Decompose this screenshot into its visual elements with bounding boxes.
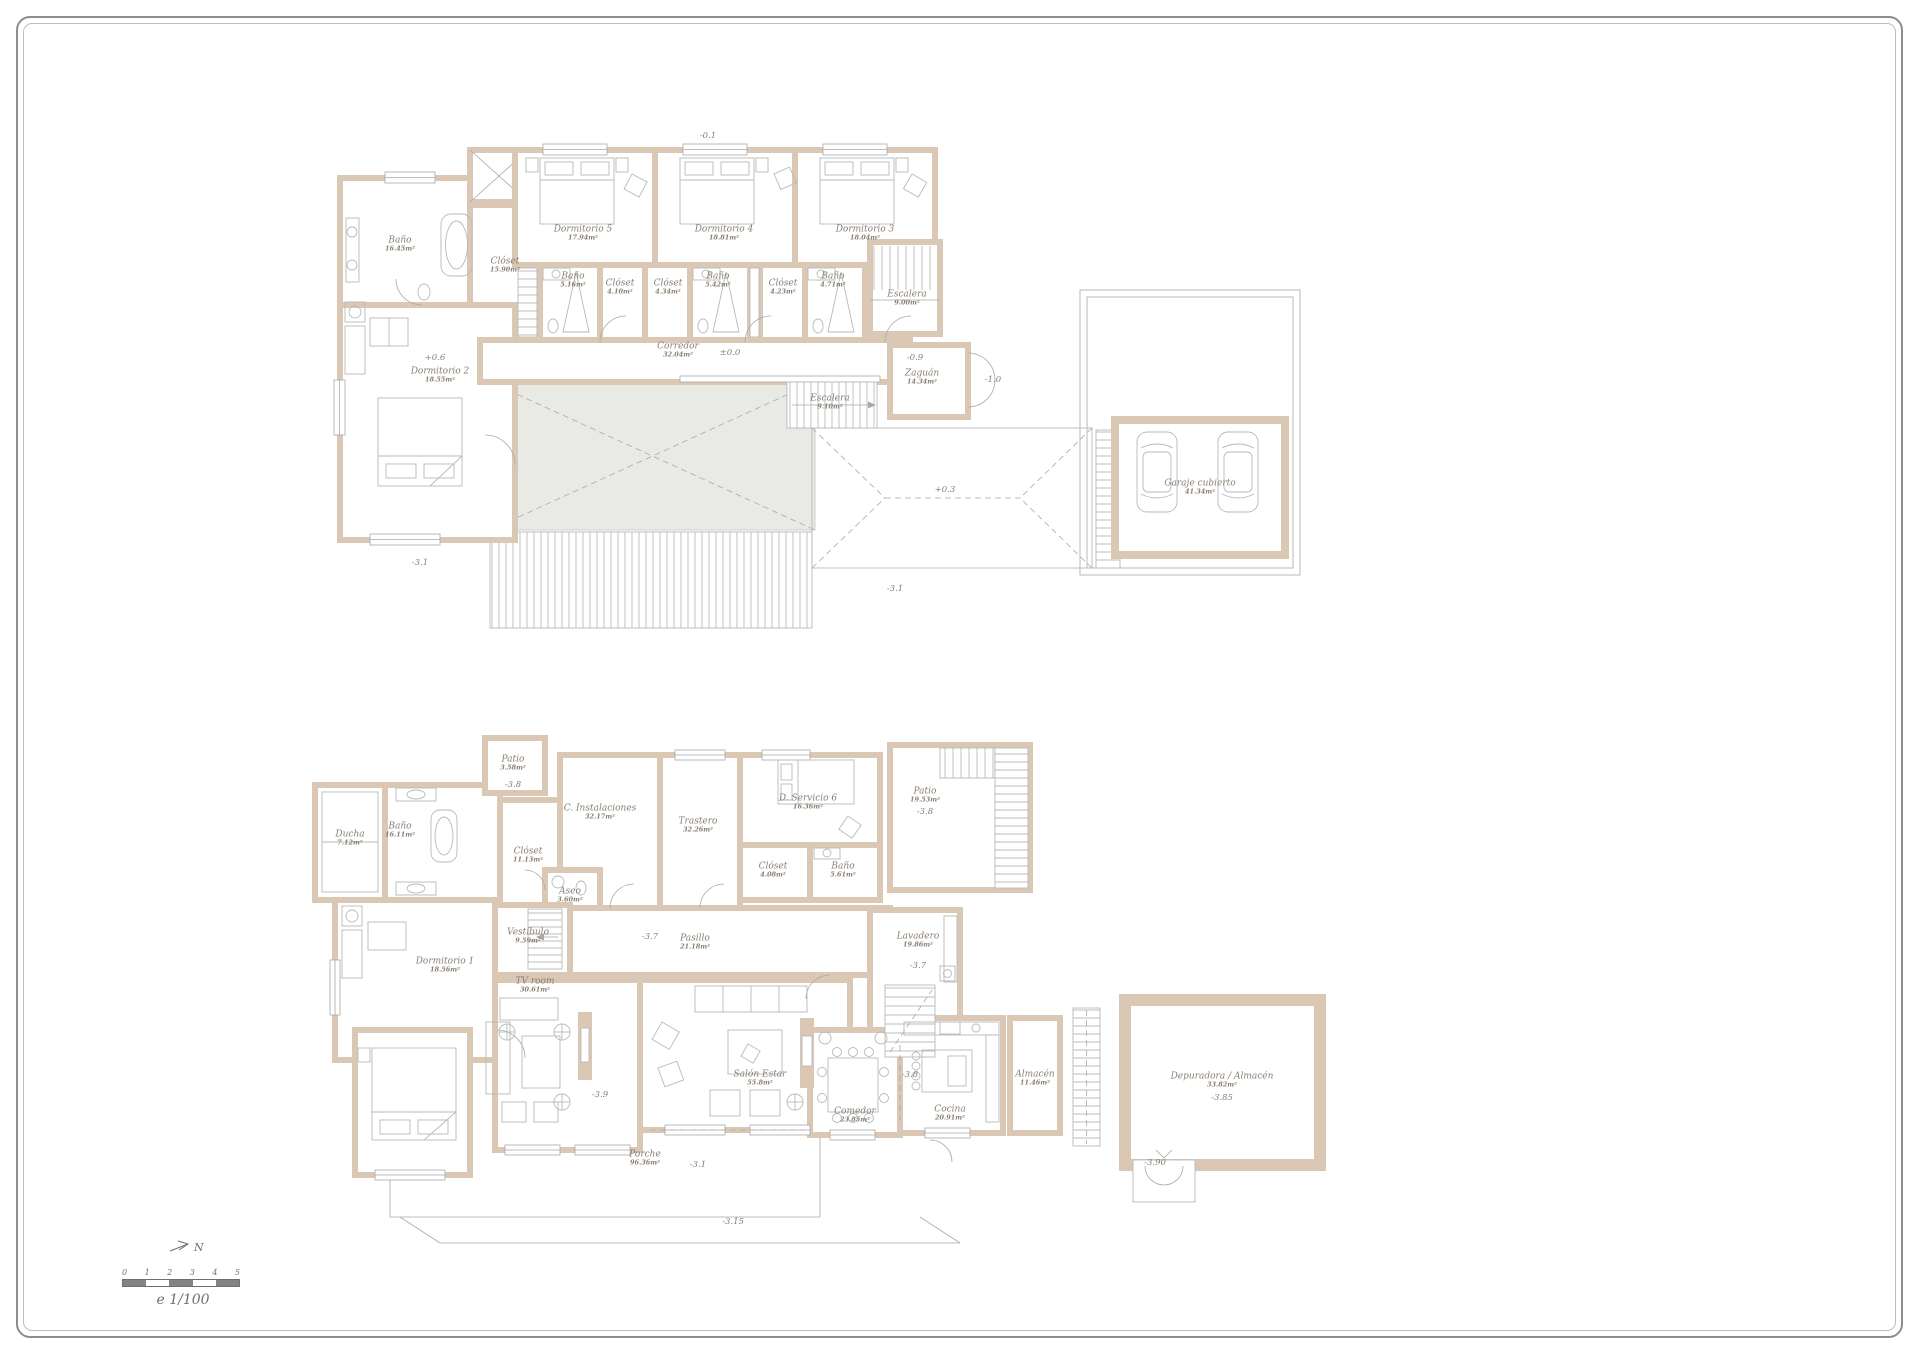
- fireplace-icon: [802, 1036, 812, 1066]
- tv-icon: [581, 1028, 589, 1062]
- level-label: -3.9: [592, 1090, 608, 1100]
- level-label: -3.8: [917, 807, 933, 817]
- room-label: Clóset4.23m²: [769, 278, 798, 295]
- room-label: C. Instalaciones32.17m²: [564, 803, 637, 820]
- room-label: D. Servicio 616.36m²: [779, 793, 837, 810]
- room-label: Baño16.11m²: [385, 821, 415, 838]
- room-label: Dormitorio 418.81m²: [695, 224, 754, 241]
- room-pasillo: [570, 908, 890, 975]
- room-label: Zaguán14.34m²: [905, 368, 939, 385]
- room-label: Patio19.53m²: [910, 786, 940, 803]
- room-label: Dormitorio 318.04m²: [836, 224, 895, 241]
- level-label: -1.0: [985, 375, 1001, 385]
- room-label: Dormitorio 118.56m²: [416, 956, 475, 973]
- room-label: Garaje cubierto41.34m²: [1164, 478, 1235, 495]
- room-label: Vestíbulo9.59m²: [507, 927, 549, 944]
- level-label: -3.1: [887, 584, 903, 594]
- roof: [812, 428, 1092, 568]
- room-label: Baño5.61m²: [830, 861, 856, 878]
- room-label: Baño4.71m²: [820, 271, 846, 288]
- level-label: ±0.0: [720, 348, 741, 358]
- level-label: -3.1: [412, 558, 428, 568]
- room-bano-16-11: [385, 785, 500, 900]
- room-dormitorio-4: [655, 150, 795, 265]
- room-label: Trastero32.26m²: [679, 816, 718, 833]
- room-label: Clóset4.34m²: [654, 278, 683, 295]
- room-label: TV room30.61m²: [515, 976, 554, 993]
- level-label: +0.3: [935, 485, 956, 495]
- level-label: +0.6: [425, 353, 446, 363]
- level-label: -3.15: [722, 1217, 744, 1227]
- deck: [490, 532, 812, 628]
- upper-floor-plan: [300, 130, 1310, 650]
- room-label: Ducha7.12m²: [335, 829, 364, 846]
- level-label: -0.1: [700, 131, 716, 141]
- terrace: [490, 382, 815, 530]
- porch: [390, 1133, 960, 1243]
- north-arrow: N: [168, 1240, 204, 1254]
- room-label: Depuradora / Almacén33.82m²: [1171, 1071, 1274, 1088]
- stair-right: [1073, 1008, 1100, 1146]
- room-tv: [495, 980, 640, 1150]
- room-label: Clóset4.10m²: [606, 278, 635, 295]
- room-label: Baño5.16m²: [560, 271, 586, 288]
- room-label: Aseo3.60m²: [557, 886, 583, 903]
- room-closet-4a: [600, 265, 645, 340]
- room-label: Baño5.42m²: [705, 271, 731, 288]
- scale-bar-segments: [122, 1279, 240, 1287]
- room-label: Clóset4.08m²: [759, 861, 788, 878]
- level-label: -3.8: [505, 780, 521, 790]
- room-label: Dormitorio 218.55m²: [411, 366, 470, 383]
- level-label: -3.7: [910, 961, 926, 971]
- room-label: Clóset11.13m²: [513, 846, 543, 863]
- room-label: Comedor23.85m²: [834, 1106, 876, 1123]
- stair-lavadero: [885, 985, 935, 1057]
- room-label: Lavadero19.86m²: [897, 931, 940, 948]
- room-dormitorio-5: [515, 150, 655, 265]
- drawing-sheet: Baño16.45m² Clóset15.90m² Dormitorio 218…: [0, 0, 1919, 1354]
- room-label: Escalera9.10m²: [810, 393, 849, 410]
- room-label: Escalera9.00m²: [887, 289, 926, 306]
- room-label: Pasillo21.18m²: [680, 933, 710, 950]
- room-label: Baño16.45m²: [385, 235, 415, 252]
- scale-bar: 01 23 45: [122, 1268, 240, 1287]
- level-label: -0.9: [907, 353, 923, 363]
- room-label: Patio3.58m²: [500, 754, 526, 771]
- room-label: Salón Estar55.8m²: [734, 1069, 787, 1086]
- level-label: -3.8: [902, 1070, 918, 1080]
- room-closet-4c: [760, 265, 805, 340]
- room-trastero: [660, 755, 740, 925]
- level-label: -3.90: [1144, 1158, 1166, 1168]
- room-label: Corredor32.04m²: [657, 341, 699, 358]
- room-label: Clóset15.90m²: [490, 256, 520, 273]
- north-label: N: [194, 1241, 204, 1254]
- room-label: Porche96.36m²: [629, 1149, 661, 1166]
- room-label: Cocina20.91m²: [934, 1104, 965, 1121]
- level-label: -3.1: [690, 1160, 706, 1170]
- stair-room: [870, 242, 940, 334]
- level-label: -3.85: [1211, 1093, 1233, 1103]
- room-label: Dormitorio 517.94m²: [554, 224, 613, 241]
- room-label: Almacén11.46m²: [1015, 1069, 1054, 1086]
- scale-label: e 1/100: [138, 1292, 228, 1308]
- room-closet-4b: [645, 265, 690, 340]
- level-label: -3.7: [642, 932, 658, 942]
- scale-ticks: 01 23 45: [122, 1268, 240, 1277]
- north-arrow-icon: [168, 1240, 192, 1254]
